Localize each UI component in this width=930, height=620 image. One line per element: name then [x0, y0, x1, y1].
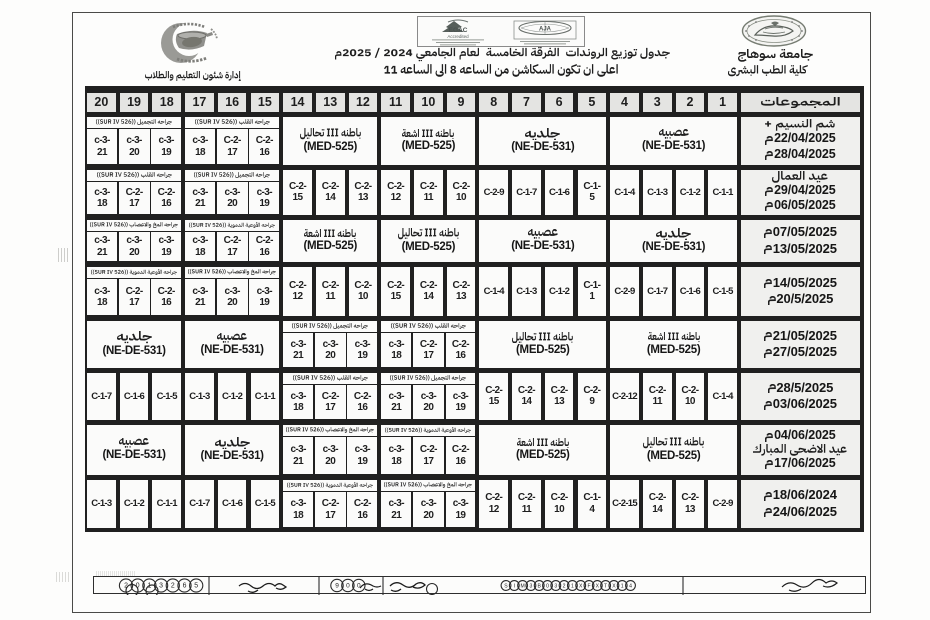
svg-text:B: B: [537, 584, 541, 590]
svg-text:2: 2: [563, 584, 566, 590]
svg-text:1: 1: [621, 584, 624, 590]
svg-text:0: 0: [357, 583, 361, 590]
svg-text:9: 9: [335, 583, 339, 590]
svg-text:M: M: [520, 584, 524, 590]
svg-text:3: 3: [529, 584, 532, 590]
svg-text:X: X: [612, 584, 616, 590]
svg-text:X: X: [596, 584, 600, 590]
svg-text:I: I: [514, 584, 515, 590]
svg-text:T: T: [604, 584, 607, 590]
svg-text:2: 2: [171, 583, 175, 590]
svg-text:3: 3: [554, 584, 557, 590]
svg-text:F: F: [587, 584, 590, 590]
svg-text:3: 3: [159, 583, 163, 590]
svg-text:Accredited: Accredited: [447, 34, 469, 39]
svg-text:0: 0: [346, 583, 350, 590]
svg-text:6: 6: [183, 583, 187, 590]
svg-text:EGAC: EGAC: [449, 27, 468, 34]
svg-text:S: S: [504, 584, 508, 590]
svg-text:5: 5: [194, 583, 198, 590]
svg-text:1: 1: [571, 584, 574, 590]
svg-text:0: 0: [546, 584, 549, 590]
svg-text:X: X: [579, 584, 583, 590]
svg-text:4: 4: [629, 584, 632, 590]
svg-text:AJA: AJA: [539, 27, 552, 33]
